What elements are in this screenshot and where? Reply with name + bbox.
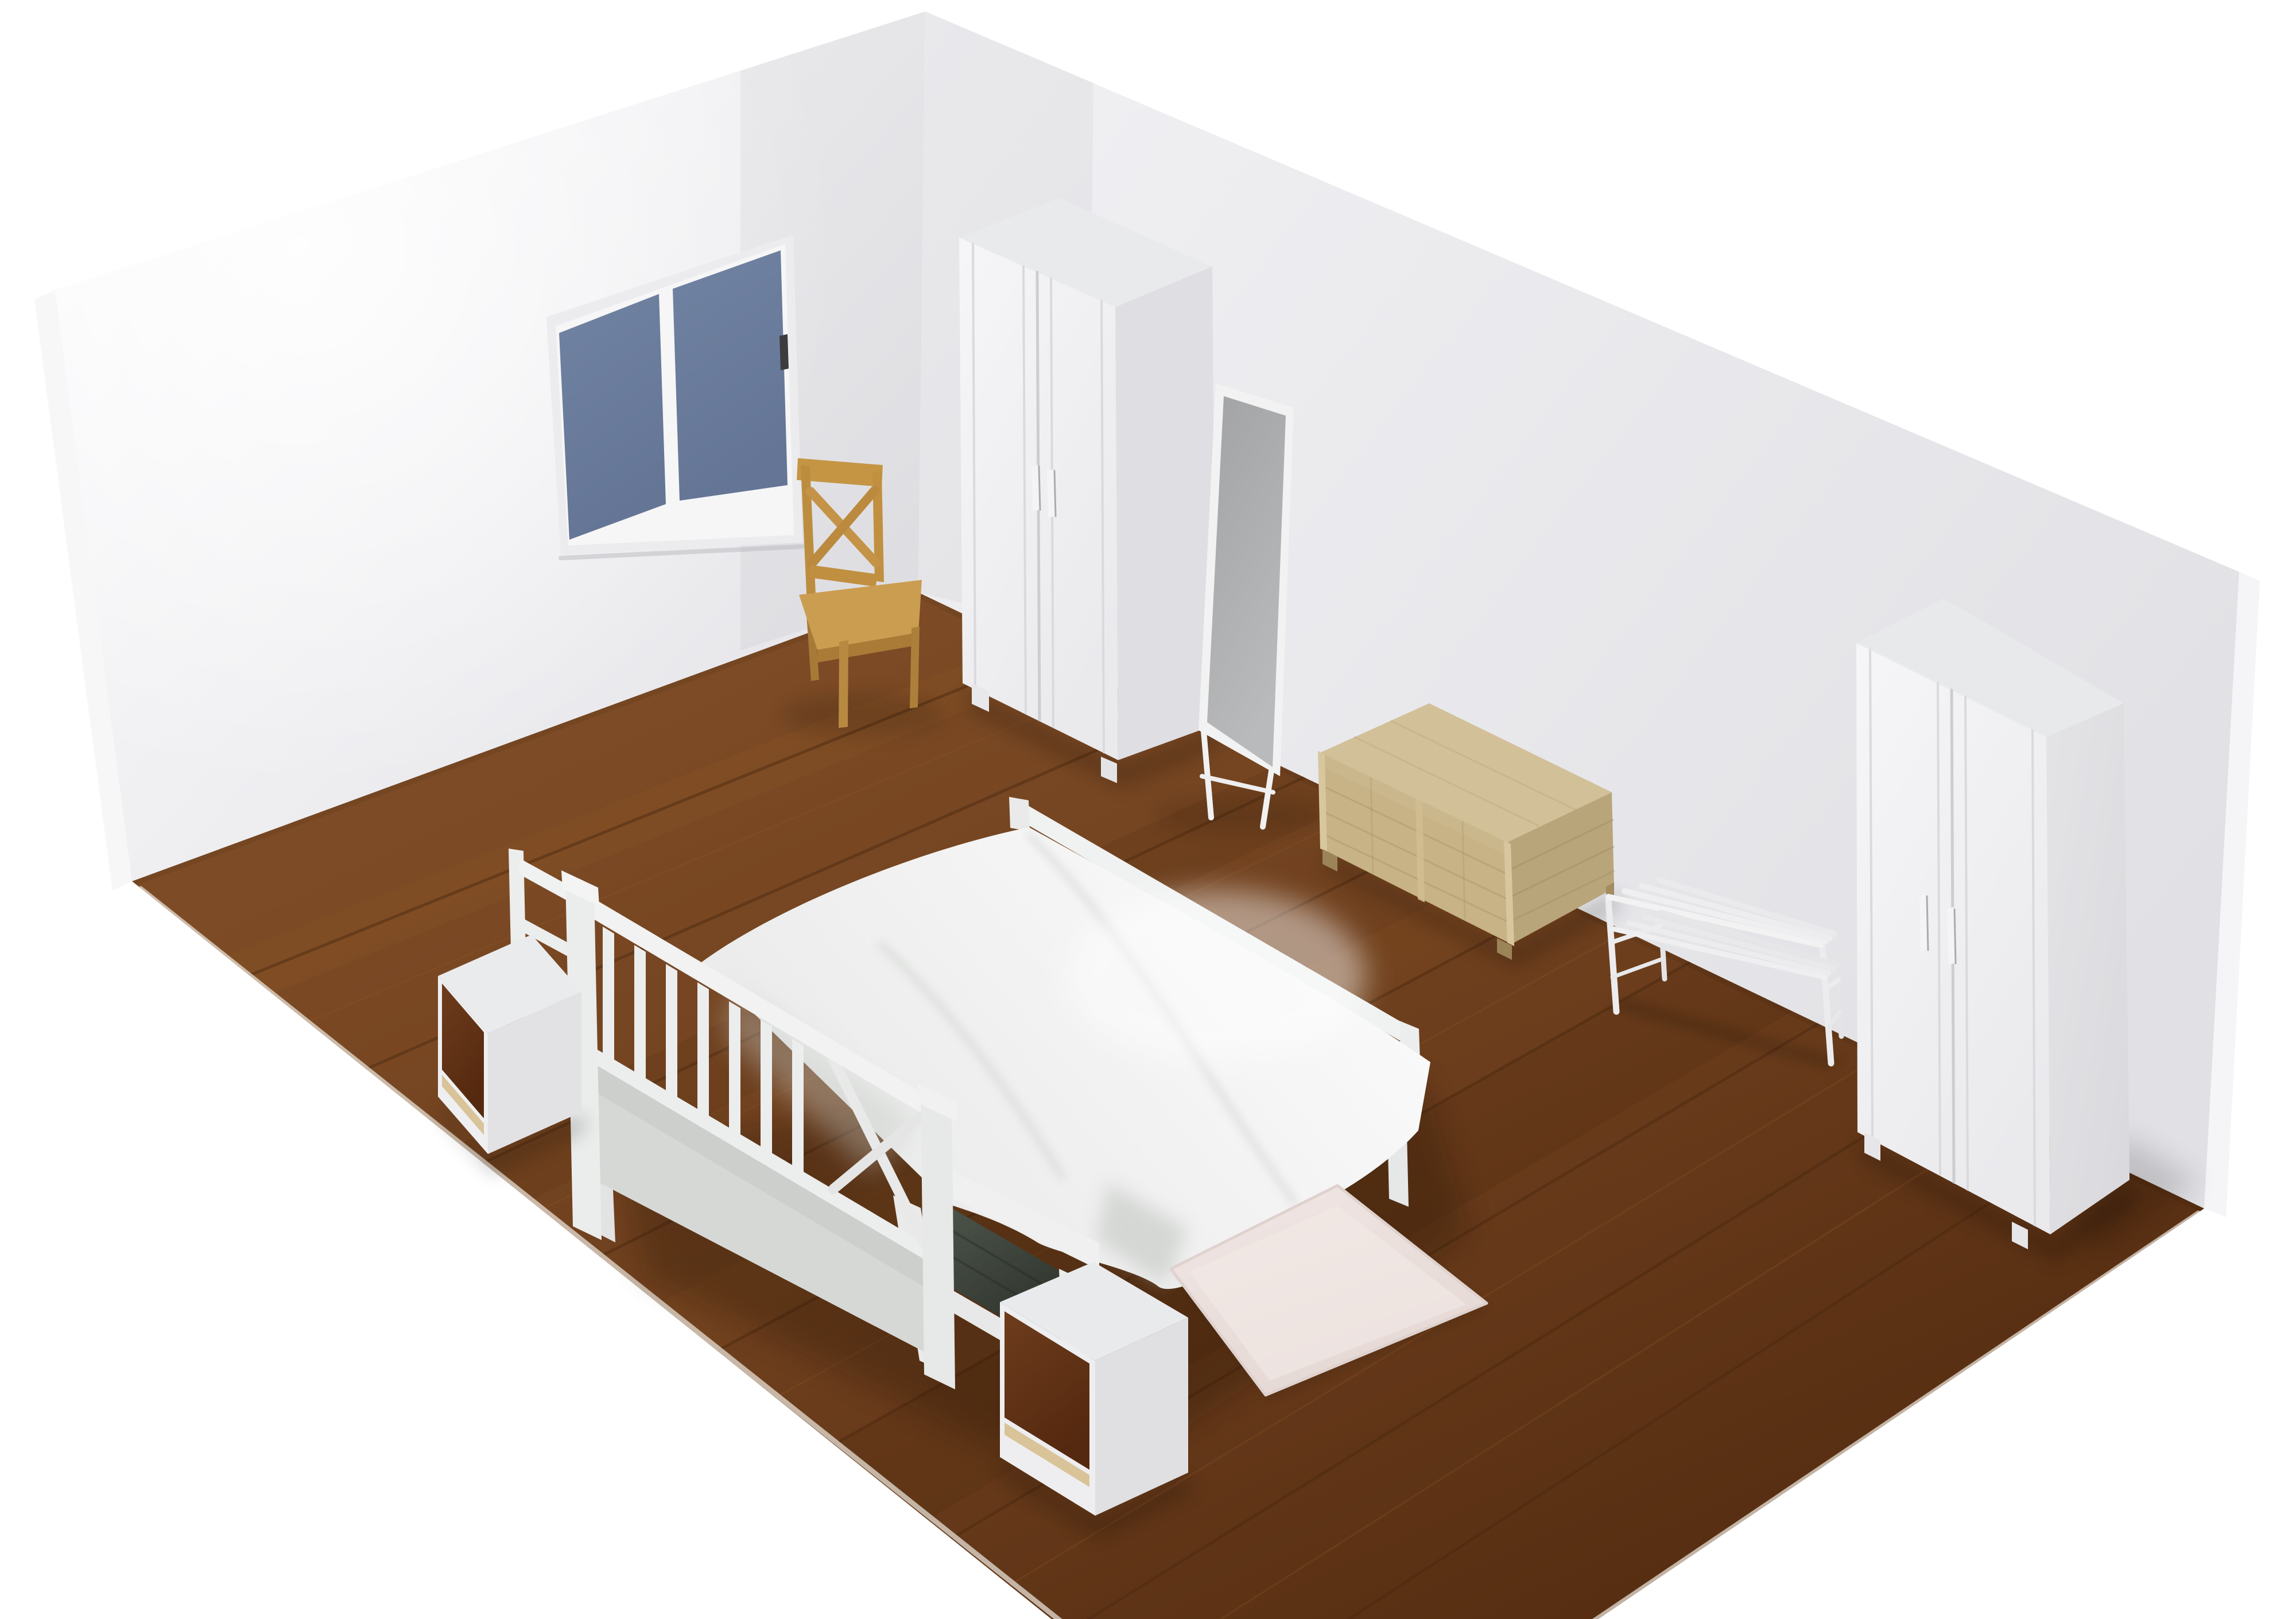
window-pane-left[interactable]	[559, 294, 666, 540]
bed-spindle-7[interactable]	[792, 1039, 804, 1175]
render-stage	[0, 0, 2296, 1619]
bed-spindle-2[interactable]	[634, 945, 646, 1082]
window-handle[interactable]	[779, 334, 789, 370]
bed-spindle-5[interactable]	[729, 1001, 740, 1138]
wardrobe-right-handle-2-shade	[1954, 909, 1956, 963]
window-pane-right[interactable]	[673, 250, 788, 501]
bed-spindle-4[interactable]	[697, 982, 709, 1119]
mirror-shadow	[1154, 797, 1326, 834]
bed-post-right[interactable]	[921, 1091, 955, 1389]
bedroom-3d-scene	[0, 0, 2296, 1619]
wardrobe-left-handle-1-shade	[1039, 466, 1040, 510]
bed-far-rail-cap-left	[1009, 797, 1030, 831]
wardrobe-left-side[interactable]	[1115, 266, 1216, 760]
bed-spindle-6[interactable]	[761, 1020, 772, 1156]
wardrobe-right-side[interactable]	[2046, 703, 2130, 1234]
bed-spindle-3[interactable]	[666, 964, 677, 1101]
wardrobe-left-handle-2-shade	[1054, 471, 1056, 516]
chair-shadow	[781, 693, 947, 737]
wardrobe-right-handle-1-shade	[1927, 896, 1928, 950]
wardrobe-left[interactable]	[959, 198, 1223, 788]
chair-front-left-leg[interactable]	[839, 640, 848, 728]
bed-spindle-1[interactable]	[603, 927, 614, 1063]
bed-duvet-highlight	[1068, 890, 1366, 1062]
